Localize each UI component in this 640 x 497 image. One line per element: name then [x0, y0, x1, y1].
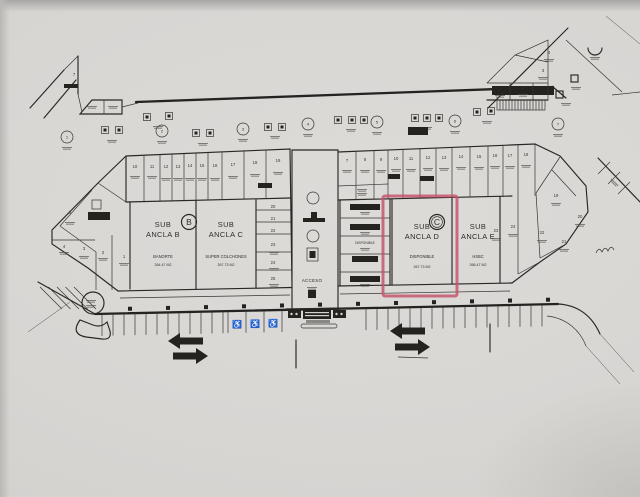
kiosk-stand [303, 212, 325, 222]
unit-number: 25 [271, 276, 276, 281]
right-wing: DISPONIBLE [338, 144, 588, 294]
axis-number: 6 [454, 119, 457, 124]
light-pole-icon [508, 299, 512, 303]
unit-number: 7 [346, 158, 349, 163]
transformer-block [408, 127, 428, 135]
left-wing [52, 149, 292, 298]
anchor-e-line2: ANCLA E [461, 232, 495, 241]
unit-number: 19 [276, 158, 281, 163]
unit-number: 17 [508, 153, 513, 158]
light-pole-icon [546, 298, 550, 302]
unit-number: 2 [102, 250, 105, 255]
store-logo-bar [352, 256, 378, 262]
available-unit-label: DISPONIBLE [355, 241, 376, 245]
axis-number: 4 [307, 122, 310, 127]
unit-number: 17 [231, 162, 236, 167]
unit-number: 9 [380, 157, 383, 162]
utility-box-icon [571, 75, 578, 82]
anchor-e-area: 266.47 M2 [470, 263, 487, 267]
utility-box-icon [92, 200, 101, 209]
unit-number: 24 [271, 260, 276, 265]
light-pole-icon [318, 303, 322, 307]
unit-number: 3 [542, 68, 545, 73]
unit-number: 11 [409, 156, 414, 161]
anchor-e-tenant: HSBC [472, 254, 483, 259]
anchor-b-area: 264.47 M2 [155, 263, 172, 267]
curb-island [76, 320, 110, 339]
wheelchair-icon: ♿ [250, 319, 260, 329]
unit-number: 14 [459, 154, 464, 159]
wheelchair-icon: ♿ [232, 319, 242, 329]
unit-number: 18 [524, 152, 529, 157]
unit-number: 15 [477, 154, 482, 159]
unit-number: 4 [548, 50, 551, 55]
unit-number: 12 [426, 155, 431, 160]
anchor-e-line1: SUB [470, 222, 486, 231]
stairs-block [88, 212, 110, 220]
axis-markers: 1234567 [61, 115, 564, 143]
anchor-c-line2: ANCLA C [209, 230, 244, 239]
unit-number: 10 [133, 164, 138, 169]
unit-number: 19 [554, 193, 559, 198]
light-pole-icon [432, 300, 436, 304]
anchor-b-tenant: BANORTE [153, 254, 173, 259]
axis-number: 1 [66, 135, 69, 140]
anchor-c-line1: SUB [218, 220, 234, 229]
top-right-units [487, 16, 640, 110]
site-plan-drawing: ACCESO DISPONIBLE SUB ANCLA B BANORTE 26… [0, 0, 640, 497]
unit-number: 18 [253, 160, 258, 165]
anchor-b-line1: SUB [155, 220, 171, 229]
wheelchair-icon: ♿ [268, 318, 278, 328]
anchor-b-line2: ANCLA B [146, 230, 180, 239]
unit-number: 1 [123, 254, 126, 259]
arrow-left-icon [390, 323, 425, 339]
unit-number: 23 [271, 242, 276, 247]
unit-number: 21 [562, 239, 567, 244]
unit-number: 4 [63, 244, 66, 249]
unit-number: 21 [271, 216, 276, 221]
store-logo-bar [420, 176, 434, 181]
arrow-left-icon [168, 333, 203, 349]
arrow-right-icon [173, 348, 208, 364]
unit-number: 14 [188, 163, 193, 168]
light-pole-icon [128, 307, 132, 311]
anchor-c-area: 267.73 M2 [218, 263, 235, 267]
highlight-anchor-d [383, 196, 457, 296]
acceso-label: ACCESO [302, 278, 323, 283]
anchor-c-tenant: SUPER COLCHONES [205, 254, 246, 259]
unit-number: 12 [164, 164, 169, 169]
light-pole-icon [470, 299, 474, 303]
light-pole-icon [242, 304, 246, 308]
traffic-arrows [168, 323, 430, 364]
stairs-hatch-lines [500, 100, 542, 110]
light-pole-icon [166, 306, 170, 310]
unit-number: 8 [364, 157, 367, 162]
unit-number: 24 [511, 224, 516, 229]
axis-number: 3 [242, 127, 245, 132]
parking-area: ♿♿♿ [28, 282, 634, 384]
anchor-d-tenant: DISPONIBLE [410, 254, 435, 259]
arrow-right-icon [395, 339, 430, 355]
unit-number: 11 [150, 164, 155, 169]
axis-number: 7 [557, 122, 560, 127]
store-logo-bar [388, 174, 400, 179]
unit-number: 22 [540, 230, 545, 235]
entrance-canopy [286, 308, 348, 328]
unit-number: 20 [578, 214, 583, 219]
unit-number: 23 [494, 228, 499, 233]
anchor-d-line2: ANCLA D [405, 232, 439, 241]
light-pole-icon [394, 301, 398, 305]
unit-number: 13 [442, 155, 447, 160]
right-side-road [596, 158, 640, 253]
anchor-d-area: 267.73 M2 [414, 265, 431, 269]
unit-number: 15 [200, 163, 205, 168]
light-pole-icon [280, 303, 284, 307]
axis-number: 5 [376, 120, 379, 125]
section-marker-b: B [186, 217, 192, 227]
store-logo-bar [350, 204, 380, 210]
unit-number: 13 [176, 164, 181, 169]
unit-number: 3 [83, 246, 86, 251]
store-logo-bar [350, 276, 380, 282]
access-corridor: ACCESO [292, 150, 338, 310]
unit-number: 16 [213, 163, 218, 168]
kiosk-block [64, 84, 78, 88]
landscape-symbol [596, 247, 614, 253]
unit-number: 10 [394, 156, 399, 161]
store-logo-bar [258, 183, 272, 188]
unit-number: 22 [271, 228, 276, 233]
note-circle [82, 292, 104, 314]
dome-symbol [588, 48, 602, 55]
unit-numbers: 1011121314151617181920212223242578910111… [63, 50, 583, 281]
disabled-parking-icons: ♿♿♿ [228, 311, 282, 333]
kiosk-box [308, 290, 316, 298]
section-marker-c: C [434, 217, 440, 227]
top-left-roads [30, 56, 138, 118]
unit-number: 20 [271, 204, 276, 209]
anchor-d-line1: SUB [414, 222, 430, 231]
kiosk-circle-icon [307, 192, 319, 204]
axis-number: 2 [161, 129, 164, 134]
light-pole-icon [204, 305, 208, 309]
unit-number: 7 [73, 72, 76, 77]
light-pole-icon [356, 302, 360, 306]
kiosk-circle-icon [307, 230, 319, 242]
unit-number: 16 [493, 153, 498, 158]
store-logo-bar [350, 224, 380, 230]
